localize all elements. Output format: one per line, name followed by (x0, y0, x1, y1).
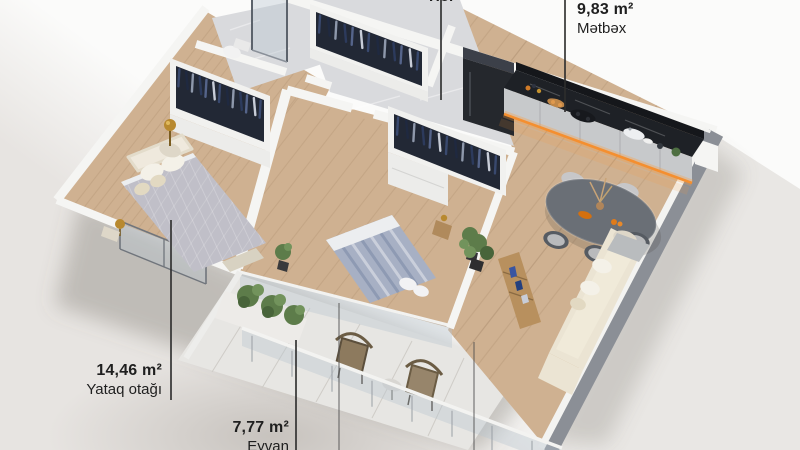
bed2-gold-vase (441, 215, 447, 221)
leader-line-yataq (170, 220, 172, 400)
gold-lamp-small (115, 219, 125, 229)
room-name-hol: Hol (429, 0, 453, 5)
room-name-eyvan: Eyvan (165, 438, 289, 450)
gold-lamp-tall (164, 119, 176, 131)
room-label-metbex: 9,83 m² Mətbəx (577, 0, 634, 39)
room-area-metbex: 9,83 m² (577, 0, 634, 20)
leader-line-eyvan (295, 340, 297, 450)
table-vase (596, 202, 604, 210)
leader-line-metbex (564, 0, 566, 112)
leader-line-extra-2 (473, 342, 475, 450)
room-area-yataq: 14,46 m² (38, 361, 162, 381)
room-area-eyvan: 7,77 m² (165, 418, 289, 438)
room-name-yataq: Yataq otağı (38, 381, 162, 400)
room-name-metbex: Mətbəx (577, 20, 634, 39)
leader-line-hol (440, 0, 442, 100)
kitchen-plant (672, 148, 681, 157)
room-label-yataq: 14,46 m² Yataq otağı (38, 361, 162, 400)
room-label-eyvan: 7,77 m² Eyvan (165, 418, 289, 450)
floorplan-stage: Hol 9,83 m² Mətbəx 14,46 m² Yataq otağı … (0, 0, 800, 450)
room-label-hol: Hol (429, 0, 453, 7)
leader-line-extra-1 (338, 303, 340, 450)
